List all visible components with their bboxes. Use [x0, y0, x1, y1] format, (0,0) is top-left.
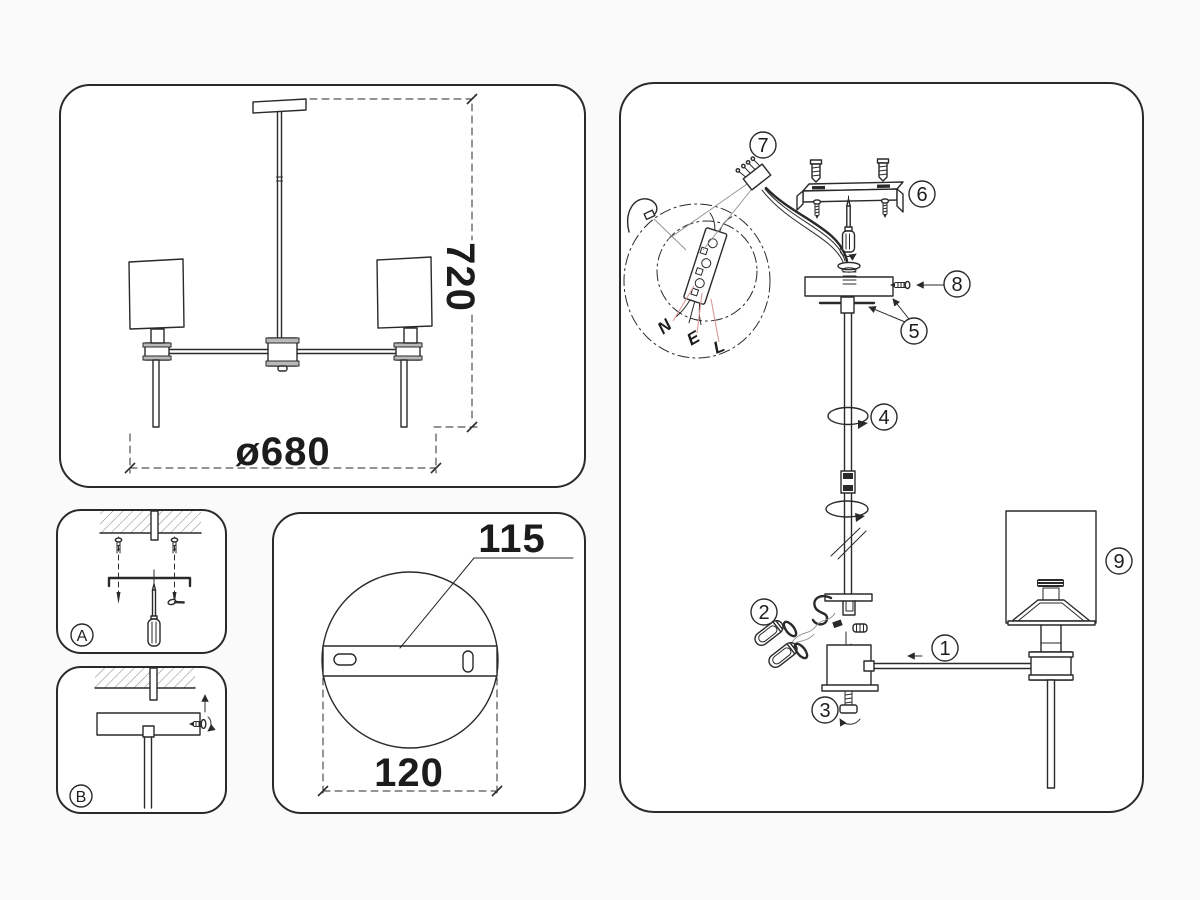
socket-thread [1037, 579, 1064, 587]
rod-nut [841, 297, 854, 313]
svg-text:8: 8 [951, 274, 962, 296]
ceiling-cap [253, 99, 306, 113]
panel-step-b: B [57, 667, 226, 813]
part-label-8: 8 [944, 271, 970, 297]
panel-front-view: 720 ø680 [60, 85, 585, 487]
part-label-6: 6 [909, 181, 935, 207]
ceiling-pipe-a [151, 511, 158, 540]
ceiling-hatch-b [95, 668, 195, 688]
hub-bottom-flange [822, 685, 878, 691]
strain-relief-washer [838, 262, 860, 269]
assembly-instruction-sheet: 720 ø680 [0, 0, 1200, 900]
part-label-3: 3 [812, 697, 838, 723]
step-b-badge: B [70, 785, 92, 807]
panel-mount-plate-detail: 115 120 [273, 513, 585, 813]
part-label-9: 9 [1106, 548, 1132, 574]
svg-text:3: 3 [819, 700, 830, 722]
right-shade [377, 257, 432, 328]
svg-text:7: 7 [757, 135, 768, 157]
assembly-instructions-figure: 720 ø680 [0, 0, 1200, 900]
wall-anchor [811, 160, 822, 182]
svg-text:9: 9 [1113, 551, 1124, 573]
part-label-5: 5 [901, 318, 927, 344]
step-a-badge: A [71, 624, 93, 646]
svg-text:5: 5 [908, 321, 919, 343]
height-dimension-text: 720 [438, 242, 482, 312]
left-lower-rod [153, 360, 159, 427]
diameter-dimension-text: ø680 [235, 430, 330, 474]
panel-step-a: A [57, 510, 226, 653]
svg-text:4: 4 [878, 407, 889, 429]
bracket-dimension-text: 115 [478, 517, 546, 561]
left-shade [129, 259, 184, 329]
ceiling-pipe-b [150, 668, 157, 700]
part-label-7: 7 [750, 132, 776, 158]
lamp-lower-rod [1048, 680, 1055, 788]
plate-width-dimension-text: 120 [374, 751, 444, 795]
part-label-4: 4 [871, 404, 897, 430]
part-label-2: 2 [751, 599, 777, 625]
panel-exploded-view: N E L [620, 83, 1143, 812]
shade-rim [1008, 621, 1095, 625]
step-a-label: A [77, 628, 88, 645]
right-lower-rod [401, 360, 407, 427]
svg-text:6: 6 [916, 184, 927, 206]
step-b-label: B [76, 789, 87, 806]
svg-text:1: 1 [939, 638, 950, 660]
wall-anchor [878, 159, 889, 181]
canopy-rod-holder [143, 726, 154, 737]
svg-text:2: 2 [758, 602, 769, 624]
arm-socket [864, 661, 874, 671]
part-label-1: 1 [932, 635, 958, 661]
